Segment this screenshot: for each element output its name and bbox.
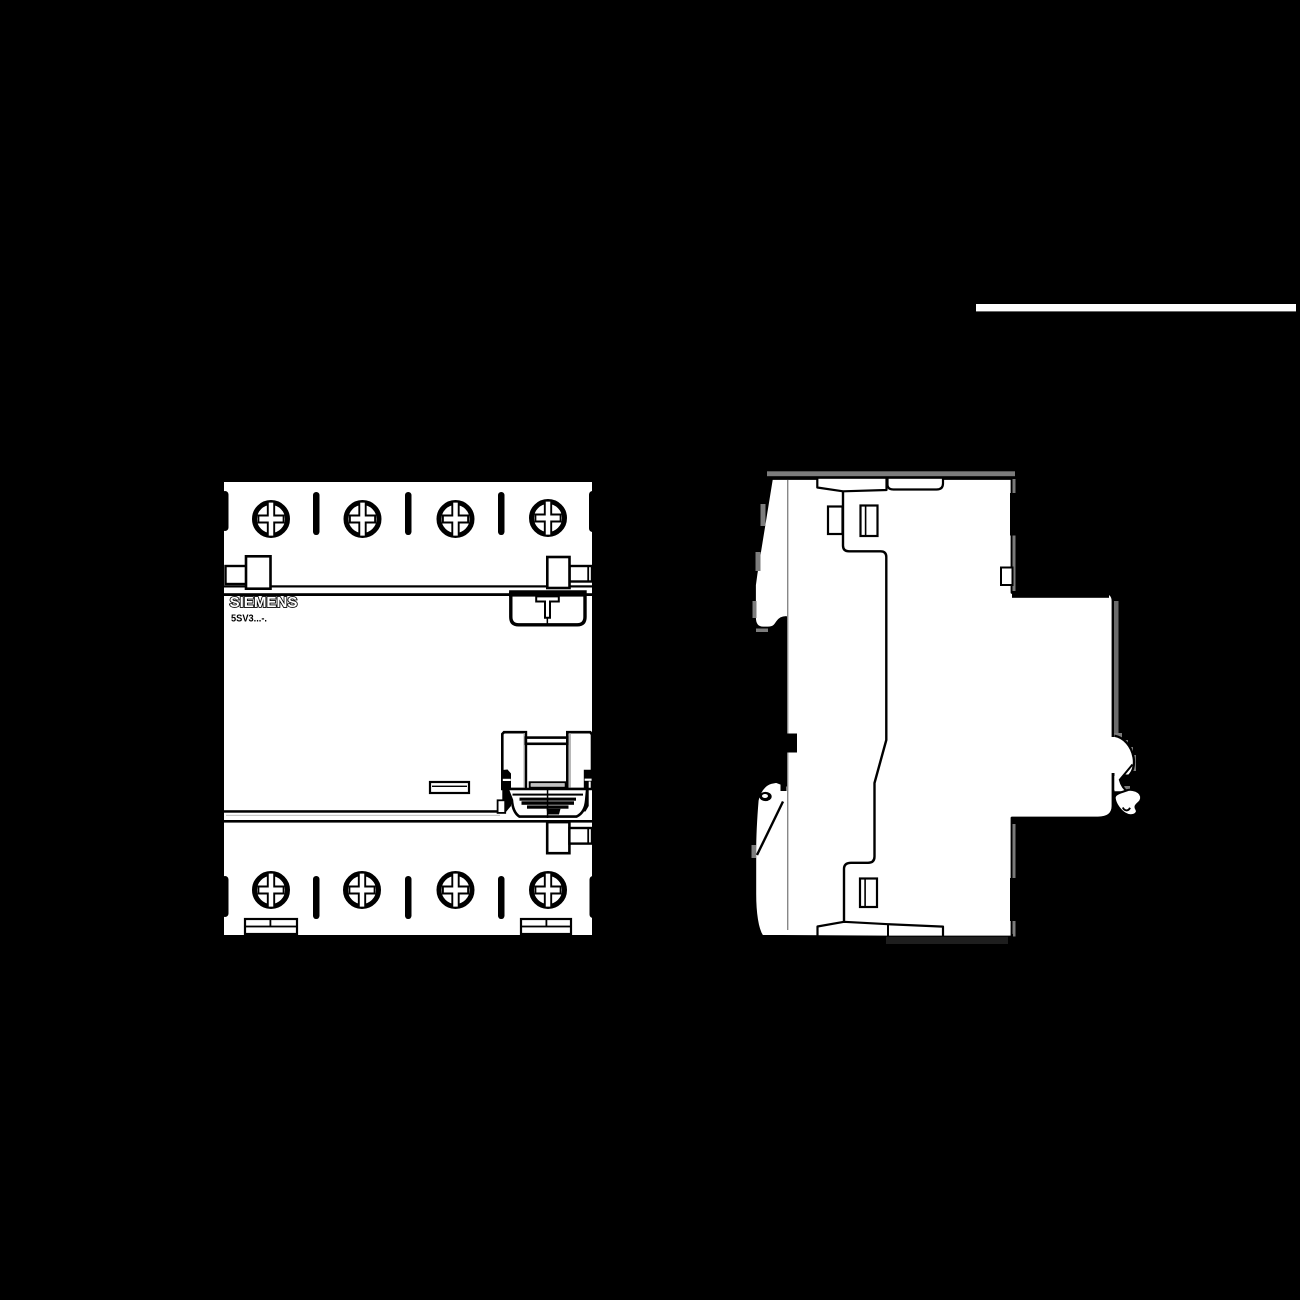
svg-text:SIEMENS: SIEMENS bbox=[230, 594, 298, 611]
svg-text:5SV3...-.: 5SV3...-. bbox=[231, 614, 267, 625]
